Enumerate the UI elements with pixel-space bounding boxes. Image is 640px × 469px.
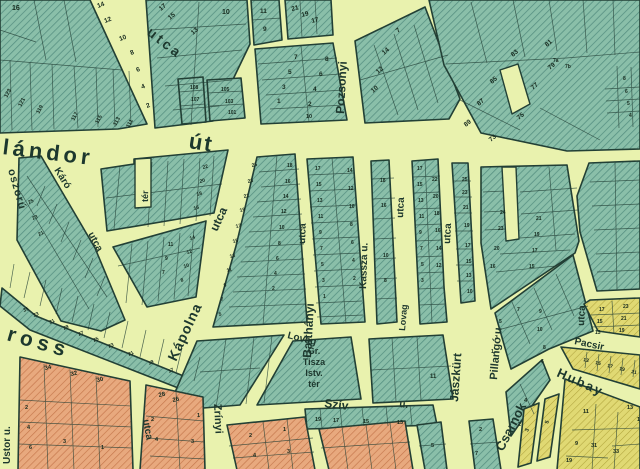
parcel-number: 3 [191,439,194,445]
parcel-number: 23 [498,226,504,232]
parcel-number: 2 [479,427,482,433]
parcel-number: 20 [494,246,500,252]
parcel-number: 11 [260,8,267,15]
parcel-number: 2 [272,286,275,292]
parcel-number: 23 [623,304,629,310]
parcel-number: 10 [383,253,389,259]
parcel-number: 14 [436,246,442,252]
parcel-number: 1 [197,413,200,419]
parcel-number: 6 [541,359,544,365]
street-label-utca-b: utca [442,223,454,245]
parcel-number: 19 [315,417,321,423]
parcel-number: 14 [347,168,353,174]
parcel-number: 17 [532,248,538,254]
parcel-number: 107 [191,97,200,103]
parcel-number: 2 [353,276,356,282]
parcel-number: 11 [430,374,437,380]
parcel-number: 25 [462,177,468,183]
parcel-number: 14 [283,194,289,200]
parcel-number: 7a [553,58,559,64]
teal-city-blocks-shape [369,335,453,403]
parcel-number: 21 [621,316,627,322]
parcel-number: 4 [629,113,632,119]
street-label-kassza: Kassza u. [358,242,371,289]
parcel-number: 17 [465,243,471,249]
map-viewport: utcalándorútPozsonyioszorúKáróutcatérKáp… [0,0,640,469]
parcel-number: 103 [225,99,234,105]
parcel-number: 11 [583,409,589,415]
parcel-number: 7 [517,307,520,313]
street-label-pozsonyi: Pozsonyi [333,61,350,114]
parcel-number: 13 [317,198,323,204]
parcel-number: 11 [168,242,174,248]
parcel-number: 5 [627,101,630,107]
parcel-number: 7 [162,270,165,276]
parcel-number: 10 [279,225,285,231]
parcel-number: 5 [499,319,502,325]
parcel-number: 12 [436,263,442,269]
parcel-number: 11 [318,214,324,220]
parcel-number: 16 [381,203,387,209]
parcel-number: 5 [288,69,292,76]
street-label-ter-small: tér [140,190,150,202]
parcel-number: 20 [433,194,439,200]
parcel-number: 6 [351,240,354,246]
street-label-batthanyi-utca: utca [297,223,309,244]
parcel-number: 10 [349,204,355,210]
street-label-ut: út [187,128,215,157]
parcel-number: 2 [249,433,252,439]
street-label-sziv: Szív [324,396,350,413]
parcel-number: 22 [432,177,438,183]
parcel-number: 7 [320,246,323,252]
square-label-line1: Gr. [308,346,321,356]
parcel-number: 17 [333,418,339,424]
parcel-number: 24 [500,210,506,216]
parcel-number: 7 [294,54,298,61]
parcel-number: 7 [420,246,423,252]
parcel-number: 5 [421,262,424,268]
parcel-number: 15 [363,419,369,425]
parcel-number: 8 [384,278,387,284]
parcel-number: 21 [536,216,542,222]
parcel-number: 2 [25,405,28,411]
parcel-number: 10 [306,114,312,120]
parcel-number: 5 [431,443,434,449]
parcel-number: 9 [539,309,542,315]
parcel-number: 9 [165,256,168,262]
parcel-number: 4 [313,86,317,93]
parcel-number: 4 [352,258,355,264]
parcel-number: 15 [316,182,322,188]
parcel-number: 12 [281,209,287,215]
parcel-number: 18 [434,211,440,217]
parcel-number: 1 [323,294,326,300]
parcel-number: 7 [475,451,478,457]
parcel-number: 15 [597,319,603,325]
parcel-number: 6 [319,71,323,78]
parcel-number: 18 [287,163,293,169]
parcel-number: 15 [417,182,423,188]
parcel-number: 21 [463,205,469,211]
parcel-number: 9 [575,441,578,447]
street-label-sziv-u: u. [399,399,409,411]
parcel-number: 6 [276,256,279,262]
parcel-number: 23 [462,190,468,196]
square-label-line3: Istv. [305,368,322,378]
parcel-number: 33 [613,449,619,455]
parcel-number: 8 [543,345,546,351]
parcel-number: 18 [380,178,386,184]
city-map: utcalándorútPozsonyioszorúKáróutcatérKáp… [0,0,640,469]
parcel-number: 5 [321,262,324,268]
parcel-number: 31 [591,443,597,449]
parcel-number: 11 [419,214,425,220]
parcel-number: 7b [565,64,571,70]
parcel-number: 9 [263,26,267,33]
parcel-number: 8 [325,56,329,63]
parcel-number: 105 [221,87,230,93]
square-label-line4: tér [308,379,320,389]
parcel-number: 15 [529,264,535,270]
parcel-number: 16 [12,5,20,12]
parcel-number: 12 [348,186,354,192]
parcel-number: 108 [190,85,199,91]
parcel-number: 1 [283,427,286,433]
parcel-number: 13 [466,273,472,279]
parcel-number: 2 [151,417,154,423]
parcel-number: 19 [619,328,625,334]
parcel-number: 13 [595,330,601,336]
parcel-number: 15 [466,259,472,265]
parcel-number: 13 [397,420,403,426]
parcel-number: 6 [29,445,32,451]
parcel-number: 17 [417,166,423,172]
street-label-utca-right: utca [576,305,588,327]
parcel-number: 8 [623,76,626,82]
parcel-number: 17 [599,307,605,313]
parcel-number: 3 [495,335,498,341]
parcel-number: 13 [627,405,633,411]
parcel-number: 16 [435,228,441,234]
square-label-line2: Tisza [303,357,326,367]
parcel-number: 8 [350,222,353,228]
parcel-number: 17 [315,166,321,172]
parcel-number: 1 [277,98,281,105]
parcel-number: 1 [491,349,494,355]
teal-city-blocks-shape [251,0,282,45]
parcel-number: 101 [228,110,237,116]
parcel-number: 9 [319,230,322,236]
parcel-number: 16 [490,264,496,270]
parcel-number: 3 [322,278,325,284]
parcel-number: 19 [464,223,470,229]
parcel-number: 10 [537,327,543,333]
parcel-number: 19 [534,232,540,238]
parcel-number: 3 [287,449,290,455]
parcel-number: 6 [625,89,628,95]
parcel-number: 3 [421,278,424,284]
parcel-number: 13 [418,198,424,204]
parcel-number: 3 [63,439,66,445]
street-label-utca-a: utca [395,197,407,219]
parcel-number: 1 [101,445,104,451]
parcel-number: 8 [278,241,281,247]
parcel-number: 9 [419,230,422,236]
street-label-ustor: Ustor u. [2,426,13,464]
parcel-number: 16 [285,179,291,185]
parcel-number: 3 [282,84,286,91]
parcel-number: 2 [518,422,521,428]
parcel-number: 10 [467,289,473,295]
parcel-number: 19 [566,458,572,464]
parcel-number: 4 [274,271,277,277]
orange-city-blocks-shape [227,417,315,469]
parcel-number: 2 [308,101,312,108]
street-label-zrinyi: Zrínyi [211,404,225,435]
parcel-number: 10 [222,9,230,16]
